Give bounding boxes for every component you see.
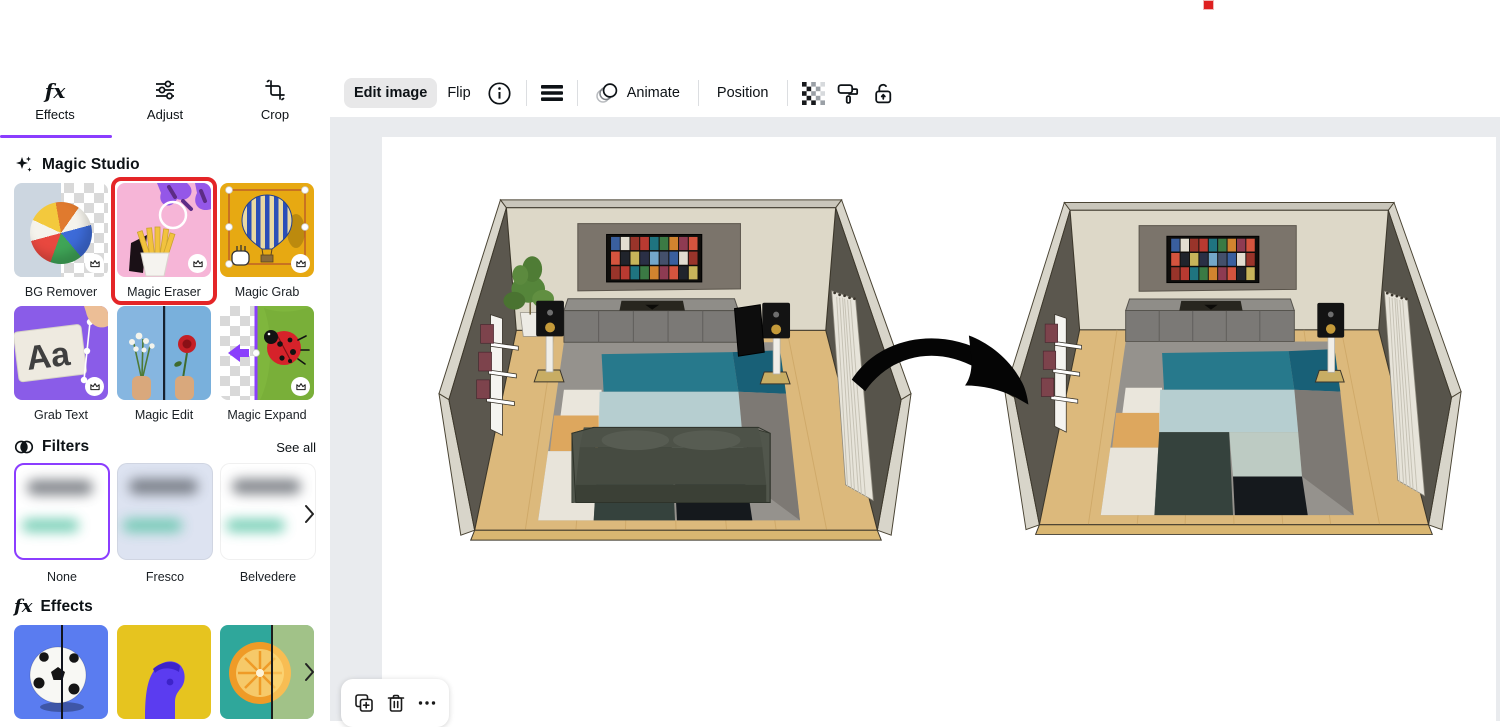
- room-before-image[interactable]: [437, 186, 913, 552]
- arrow-graphic[interactable]: [843, 324, 1041, 420]
- filter-fresco[interactable]: [117, 463, 213, 560]
- premium-crown-icon: [291, 254, 310, 273]
- tab-label: Adjust: [147, 107, 183, 122]
- adjust-sliders-icon: [153, 76, 177, 102]
- tile-label: Magic Eraser: [117, 277, 211, 306]
- animate-icon: [596, 82, 620, 104]
- magic-edit-tile[interactable]: [117, 306, 211, 400]
- toolbar-divider: [577, 80, 578, 106]
- premium-crown-icon: [85, 254, 104, 273]
- toolbar-divider: [698, 80, 699, 106]
- effects-fx-icon: fx: [14, 596, 32, 618]
- tab-effects[interactable]: fx Effects: [0, 74, 110, 122]
- active-tab-underline: [0, 135, 112, 138]
- duotone-portrait-art: [117, 625, 211, 719]
- animate-label: Animate: [627, 85, 680, 101]
- filter-label: Belvedere: [220, 565, 316, 589]
- premium-crown-icon: [291, 377, 310, 396]
- magic-edit-art: [117, 306, 211, 400]
- tile-label: Magic Edit: [117, 400, 211, 429]
- tab-crop[interactable]: Crop: [220, 74, 330, 122]
- position-button[interactable]: Position: [707, 78, 779, 108]
- spacing-lines-button[interactable]: [535, 80, 569, 106]
- expand-arrow-icon: [228, 344, 249, 362]
- filters-title: Filters: [42, 438, 89, 456]
- transparency-button[interactable]: [796, 78, 831, 109]
- tab-label: Crop: [261, 107, 289, 122]
- premium-crown-icon: [85, 377, 104, 396]
- edit-image-button[interactable]: Edit image: [344, 78, 437, 108]
- tile-label: Magic Expand: [220, 400, 314, 429]
- filter-preview-art: [226, 519, 286, 532]
- bg-remover-tile[interactable]: [14, 183, 108, 277]
- delete-button[interactable]: [385, 692, 407, 714]
- filter-none[interactable]: [14, 463, 110, 560]
- effect-duotone-tile[interactable]: [117, 625, 211, 719]
- magic-eraser-tile[interactable]: [117, 183, 211, 277]
- tile-label: BG Remover: [14, 277, 108, 306]
- curved-arrow-icon: [843, 324, 1041, 420]
- room-after-image[interactable]: [1003, 189, 1463, 546]
- editor-sidebar: fx Effects Adjust Cro: [0, 0, 330, 721]
- context-toolbar: Edit image Flip Animate: [330, 0, 1500, 117]
- beach-ball-image: [30, 202, 92, 264]
- effects-fx-icon: fx: [45, 76, 66, 102]
- more-options-button[interactable]: [417, 692, 437, 714]
- tab-label: Effects: [35, 107, 75, 122]
- effects-row: [14, 625, 314, 719]
- copy-style-roller-button[interactable]: [831, 78, 866, 109]
- effects-scroll-right-chevron[interactable]: [301, 661, 317, 683]
- grab-text-tile[interactable]: Aa: [14, 306, 108, 400]
- filter-label: None: [14, 565, 110, 589]
- premium-crown-icon: [188, 254, 207, 273]
- tile-label: Grab Text: [14, 400, 108, 429]
- magic-studio-header: Magic Studio: [14, 155, 140, 175]
- toolbar-divider: [526, 80, 527, 106]
- tab-adjust[interactable]: Adjust: [110, 74, 220, 122]
- info-button[interactable]: [481, 77, 518, 110]
- magic-expand-tile[interactable]: [220, 306, 314, 400]
- recording-marker: [1203, 0, 1214, 10]
- filter-preview-art: [27, 480, 93, 495]
- filters-scroll-right-chevron[interactable]: [301, 503, 317, 525]
- filter-preview-art: [22, 519, 79, 532]
- orange-split-art: [220, 625, 314, 719]
- effect-glow-tile[interactable]: [220, 625, 314, 719]
- crop-icon: [263, 76, 287, 102]
- flip-button[interactable]: Flip: [437, 78, 480, 108]
- animate-button[interactable]: Animate: [586, 75, 690, 111]
- magic-grab-tile[interactable]: [220, 183, 314, 277]
- magic-studio-sparkle-icon: [14, 155, 34, 175]
- sidebar-tabs: fx Effects Adjust Cro: [0, 74, 330, 122]
- duplicate-button[interactable]: [353, 692, 375, 714]
- object-action-bar: [341, 679, 449, 727]
- filter-preview-art: [123, 519, 183, 532]
- filters-icon: [14, 437, 34, 457]
- toolbar-divider: [787, 80, 788, 106]
- filters-row: None Fresco Belvedere: [14, 463, 316, 589]
- lock-button[interactable]: [866, 78, 901, 109]
- filter-label: Fresco: [117, 565, 213, 589]
- magic-studio-grid: BG Remover: [14, 183, 314, 429]
- grab-hand-icon: [232, 245, 249, 265]
- filters-see-all-link[interactable]: See all: [276, 440, 316, 455]
- filter-preview-art: [129, 479, 198, 494]
- effects-section-header: fx Effects: [14, 596, 93, 618]
- filter-preview-art: [232, 479, 301, 494]
- tile-label: Magic Grab: [220, 277, 314, 306]
- svg-text:Aa: Aa: [24, 335, 73, 378]
- effect-shadow-tile[interactable]: [14, 625, 108, 719]
- soccer-ball-split-art: [14, 625, 108, 719]
- magic-studio-title: Magic Studio: [42, 156, 140, 174]
- effects-section-title: Effects: [40, 598, 92, 616]
- filters-header: Filters See all: [14, 437, 316, 457]
